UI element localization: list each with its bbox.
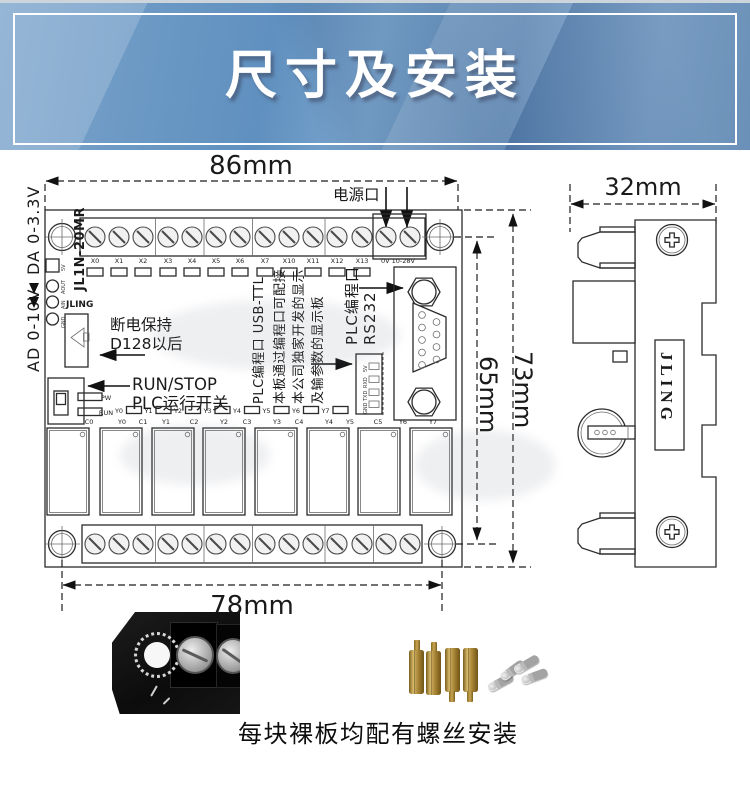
standoff-stud [449,691,455,702]
input-terminal-label: X10 [283,257,296,265]
output-terminal-label: C0 [85,418,94,426]
ttl-pin-label: TXD [363,391,369,402]
brass-standoff [409,650,424,694]
dim-86mm: 86mm [45,151,458,210]
output-led-label: Y0 [114,407,123,415]
pad-label: 5V [61,264,67,271]
input-terminal-label: X1 [115,257,124,265]
output-terminal-label: C3 [243,418,252,426]
input-terminal-label: X6 [236,257,245,265]
pad-label: AOUT [61,279,67,294]
photo-caption: 每块裸板均配有螺丝安装 [238,714,519,749]
ttl-pin-label: 5V [363,365,369,372]
output-terminal-label: Y5 [345,418,354,426]
standoffs-screws-photo [395,636,550,708]
input-terminal-label: X4 [188,257,197,265]
side-battery [578,409,635,457]
power-terminal-label: 0V 10-28V [381,257,416,265]
input-terminal-label: X7 [261,257,270,265]
dim-73mm-label: 73mm [509,351,537,428]
input-terminal-label: X3 [164,257,173,265]
output-led-label: Y4 [232,407,241,415]
brass-standoff [445,648,460,692]
pcb-corner-photo [112,612,240,714]
retain-jumper [65,314,89,367]
dim-78mm: 78mm [62,560,442,621]
model-label: JL1N-20MR [73,207,88,292]
ttl-pin-label: RXD [363,377,369,388]
terminal-screw [216,638,250,674]
dim-86mm-label: 86mm [209,151,293,181]
output-terminal-label: Y2 [219,418,228,426]
power-port-label: 电源口 [333,186,380,204]
run-stop-line1: RUN/STOP [132,375,217,394]
output-terminal-label: C5 [374,418,383,426]
input-terminal-label: X12 [331,257,344,265]
input-terminal-label: X13 [356,257,369,265]
watermark-smudge [150,300,400,370]
output-led-label: Y3 [202,407,211,415]
terminal-screw [176,636,214,674]
side-small-block [613,351,627,362]
output-terminal-label: Y1 [161,418,170,426]
output-terminal-label: Y3 [272,418,281,426]
brass-standoff [426,651,441,695]
silkscreen-mark [150,685,158,696]
input-terminal-label: X2 [139,257,148,265]
input-terminal-label: X11 [307,257,320,265]
side-middle-block [573,281,635,343]
ttl-pin-label: GND [363,402,369,414]
side-brand-label: JLING [657,352,676,424]
silkscreen-mark [163,697,171,705]
side-view: 32mm [570,173,716,567]
input-terminal-label: X0 [91,257,100,265]
dim-32mm-label: 32mm [604,173,681,201]
brass-standoff [463,648,478,692]
output-terminal-label: Y4 [324,418,333,426]
output-terminal-label: C4 [295,418,304,426]
output-terminal-label: C1 [139,418,148,426]
output-terminal-label: Y7 [428,418,437,426]
dim-65mm-label: 65mm [474,356,502,433]
mounting-hole [144,642,170,668]
output-led-label: Y6 [291,407,300,415]
output-led-label: Y2 [173,407,182,415]
brand-label: JLING [65,300,93,310]
run-led-label: RUN [99,409,113,417]
pw-led-label: PW [101,394,112,402]
input-terminal-label: X5 [212,257,221,265]
standoff-stud [467,691,473,702]
output-terminal-label: Y0 [117,418,126,426]
side-top-terminal [578,227,635,268]
output-led-label: Y1 [143,407,152,415]
side-bottom-terminal [578,513,635,554]
watermark-smudge [415,430,555,500]
analog-out-label: DA 0-3.3V [24,186,43,275]
watermark-smudge [120,425,270,485]
output-led-label: Y7 [320,407,329,415]
output-terminal-label: Y6 [398,418,407,426]
output-led-label: Y5 [261,407,270,415]
